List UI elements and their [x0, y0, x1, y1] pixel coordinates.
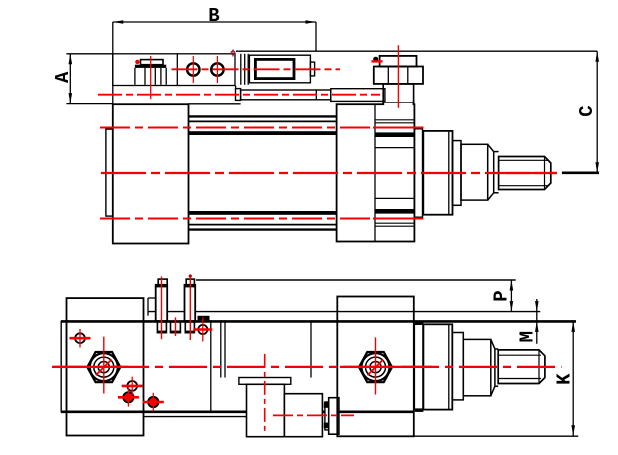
- svg-text:B: B: [208, 5, 219, 27]
- svg-text:M: M: [517, 331, 539, 342]
- svg-text:P: P: [491, 290, 513, 301]
- svg-text:C: C: [576, 105, 598, 116]
- svg-text:A: A: [52, 71, 74, 83]
- svg-text:K: K: [554, 373, 576, 385]
